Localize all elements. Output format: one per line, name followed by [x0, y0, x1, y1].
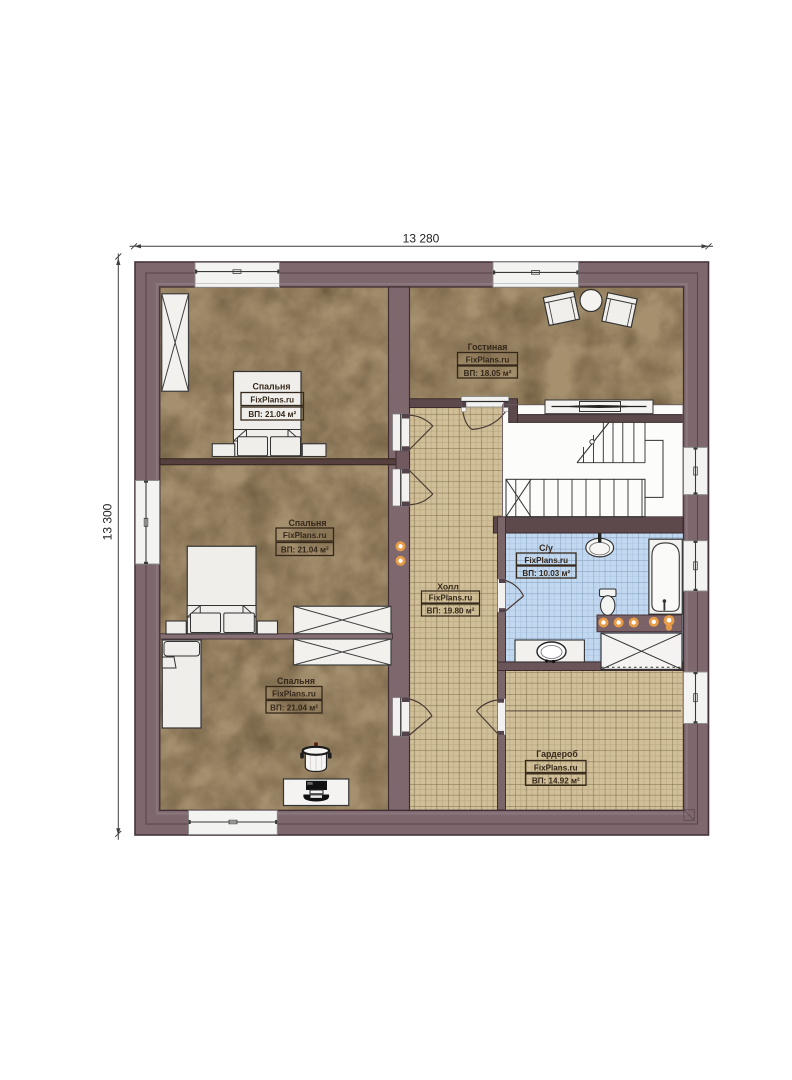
svg-text:Спальня: Спальня: [252, 382, 290, 392]
svg-text:FixPlans.ru: FixPlans.ru: [429, 594, 473, 603]
svg-text:13 300: 13 300: [101, 503, 115, 540]
svg-text:ВП: 10.03 м²: ВП: 10.03 м²: [522, 569, 570, 578]
svg-text:ВП: 21.04 м²: ВП: 21.04 м²: [248, 410, 296, 419]
svg-text:FixPlans.ru: FixPlans.ru: [283, 531, 327, 540]
svg-text:Гостиная: Гостиная: [468, 342, 508, 352]
svg-text:ВП: 21.04 м²: ВП: 21.04 м²: [281, 546, 329, 555]
svg-text:FixPlans.ru: FixPlans.ru: [524, 556, 568, 565]
svg-text:Гардероб: Гардероб: [536, 749, 578, 759]
svg-text:FixPlans.ru: FixPlans.ru: [272, 690, 316, 699]
svg-text:Спальня: Спальня: [288, 518, 326, 528]
svg-text:FixPlans.ru: FixPlans.ru: [534, 763, 578, 772]
svg-text:Холл: Холл: [437, 582, 459, 592]
svg-text:ВП: 21.04 м²: ВП: 21.04 м²: [270, 704, 318, 713]
svg-text:ВП: 14.92 м²: ВП: 14.92 м²: [532, 776, 580, 785]
svg-text:FixPlans.ru: FixPlans.ru: [250, 396, 294, 405]
svg-text:ВП: 19.80 м²: ВП: 19.80 м²: [427, 607, 475, 616]
svg-text:ВП: 18.05 м²: ВП: 18.05 м²: [464, 369, 512, 378]
svg-text:Спальня: Спальня: [277, 676, 315, 686]
svg-text:С/у: С/у: [539, 543, 553, 553]
svg-text:13 280: 13 280: [403, 232, 440, 246]
svg-text:FixPlans.ru: FixPlans.ru: [466, 356, 510, 365]
